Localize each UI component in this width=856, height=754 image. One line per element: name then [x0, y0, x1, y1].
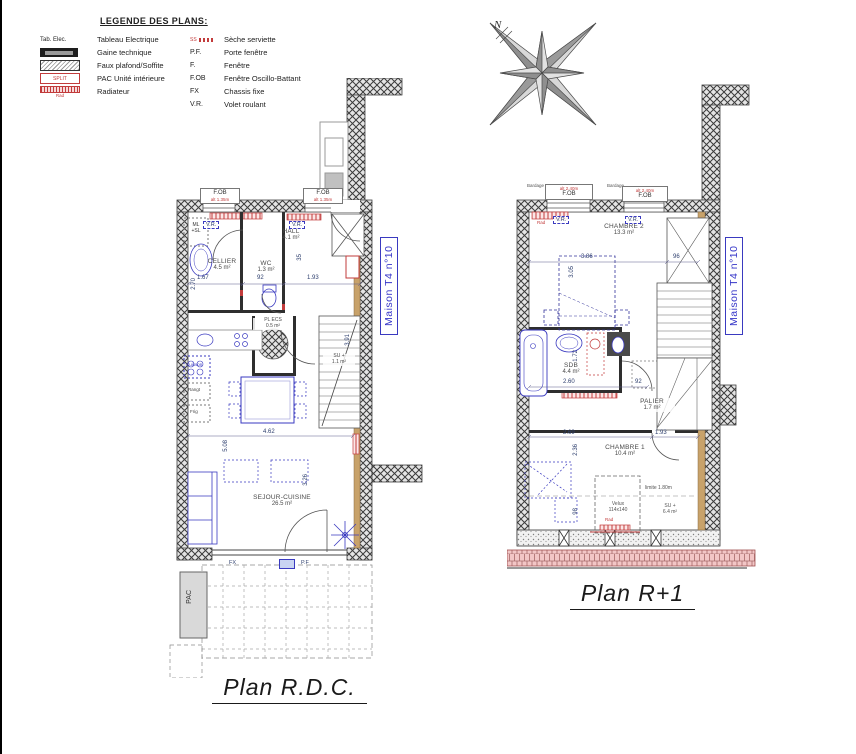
legend-item-gaine-technique: Gaine technique [40, 46, 190, 59]
plant-icon [331, 521, 359, 549]
volet-roulant-label: V.R. [203, 221, 219, 229]
gaine-technique-box [332, 214, 364, 256]
seche-serviette-symbol: SS [190, 37, 224, 43]
dim-label: 3.86 [581, 254, 593, 260]
radiator [210, 213, 262, 219]
dim-label: 2.60 [563, 379, 575, 385]
dim-label: 3.91 [345, 334, 351, 346]
dim-label: 4.62 [263, 429, 275, 435]
radiator-label: Rad [605, 518, 613, 523]
dim-label: 1.93 [655, 430, 667, 436]
radiator [353, 434, 359, 454]
soffite-symbol [40, 60, 80, 71]
porte-fenetre-label: P.F [301, 561, 309, 567]
window-label-fob: alt 2.40mF.OB [622, 186, 668, 202]
legend-item-fenetre: F. Fenêtre [190, 59, 350, 72]
stairs-surface-label: SU +6.4 m² [655, 504, 685, 516]
table-icon [241, 377, 294, 423]
height-limit-label: limite 1.80m [645, 486, 672, 491]
chassis-fixe-label: FX [229, 561, 236, 567]
desk-icon [525, 462, 577, 522]
dim-label: 92 [635, 379, 642, 385]
kitchen-label-frig: Frig [190, 410, 198, 415]
bardage-label: Bardage [527, 183, 544, 188]
dim-label: 3.05 [569, 266, 575, 278]
kitchen-counter [188, 330, 262, 350]
split-symbol: SPLIT [40, 73, 80, 84]
legend-item-faux-plafond: Faux plafond/Soffite [40, 59, 190, 72]
dim-label: 3.26 [303, 474, 309, 486]
room-label-cellier: CELLIER4.5 m² [195, 258, 249, 272]
kitchen-label-rangt: Rangt [188, 388, 200, 393]
plan-r1-title: Plan R+1 [570, 580, 695, 610]
plan-rdc: F.OBalt 1.35m F.OBalt 1.35m V.R. V.R. ML… [167, 78, 427, 678]
dim-label: 98 [573, 508, 579, 515]
compass-north-label: N [494, 20, 501, 32]
room-label-plecs: PL ECS0.5 m² [253, 318, 293, 330]
room-label-hall: HALL4.1 m² [269, 228, 313, 242]
plan-r1: Bardage Bardage alt 2.40mF.OB alt 2.40mF… [507, 78, 762, 588]
window-label-fob: alt 2.40mF.OB [545, 184, 593, 200]
window-label-fob: F.OBalt 1.35m [200, 188, 240, 204]
legend-item-porte-fenetre: P.F. Porte fenêtre [190, 46, 350, 59]
velux-label: Velux114x140 [599, 502, 637, 514]
stairs-surface-label: SU +1.1 m² [323, 354, 355, 366]
dim-label: 2.36 [573, 444, 579, 456]
exterior-walls [517, 85, 749, 540]
window-fob-1 [547, 199, 590, 212]
plan-rdc-title: Plan R.D.C. [212, 674, 367, 704]
roof-edge-band [507, 550, 755, 566]
dim-label: 1.93 [307, 275, 319, 281]
room-label-sejour: SEJOUR-CUISINE26.5 m² [239, 494, 325, 508]
room-label-sdb: SDB4.4 m² [551, 362, 591, 376]
dim-label: 1.72 [573, 350, 579, 362]
room-label-chambre1: CHAMBRE 110.4 m² [593, 444, 657, 458]
tab-elec-symbol: Tab. Elec. [40, 37, 66, 43]
dim-label: 1.67 [197, 275, 209, 281]
house-label-r1: Maison T4 n°10 [725, 237, 743, 335]
volet-roulant-label: V.R. [553, 216, 569, 224]
dim-label: 2.69 [563, 430, 575, 436]
pac-unit [180, 572, 207, 638]
house-label-rdc: Maison T4 n°10 [380, 237, 398, 335]
gaine-symbol [40, 48, 78, 57]
stairs-icon [319, 316, 360, 428]
legend-item-tableau-electrique: Tab. Elec. Tableau Electrique [40, 33, 190, 46]
floorplan-sheet: LEGENDE DES PLANS: Tab. Elec. Tableau El… [0, 0, 856, 754]
dim-label: 5.08 [223, 440, 229, 452]
pac-split-box [346, 256, 359, 278]
volet-roulant-label: V.R. [289, 221, 305, 229]
armchair-icons [224, 460, 308, 482]
radiator [600, 525, 630, 530]
dim-label: 96 [673, 254, 680, 260]
pac-label: PAC [186, 590, 193, 604]
dim-label: 35 [297, 254, 303, 261]
room-label-chambre2: CHAMBRE 213.3 m² [592, 223, 656, 237]
kitchen-label-cuisson: Cuisson [186, 363, 202, 368]
bathtub-icon [520, 330, 547, 396]
legend-item-seche-serviette: SS Sèche serviette [190, 33, 350, 46]
dim-label: 2.70 [191, 278, 197, 290]
volet-roulant-label: V.R. [625, 216, 641, 224]
dim-label: 92 [257, 275, 264, 281]
radiator-symbol: Rad [40, 86, 80, 98]
threshold-marker [279, 559, 295, 569]
legend-title: LEGENDE DES PLANS: [100, 16, 350, 26]
radiator-label: Rad [537, 221, 545, 226]
bed-icon [544, 256, 629, 330]
window-label-fob: F.OBalt 1.35m [303, 188, 343, 204]
toilet-icon [612, 337, 624, 353]
sofa-icon [188, 472, 217, 544]
radiator [287, 214, 321, 220]
room-label-palier: PALIER1.7 m² [629, 398, 675, 412]
toilet-icon [262, 285, 276, 307]
room-label-wc: WC1.3 m² [249, 260, 283, 274]
